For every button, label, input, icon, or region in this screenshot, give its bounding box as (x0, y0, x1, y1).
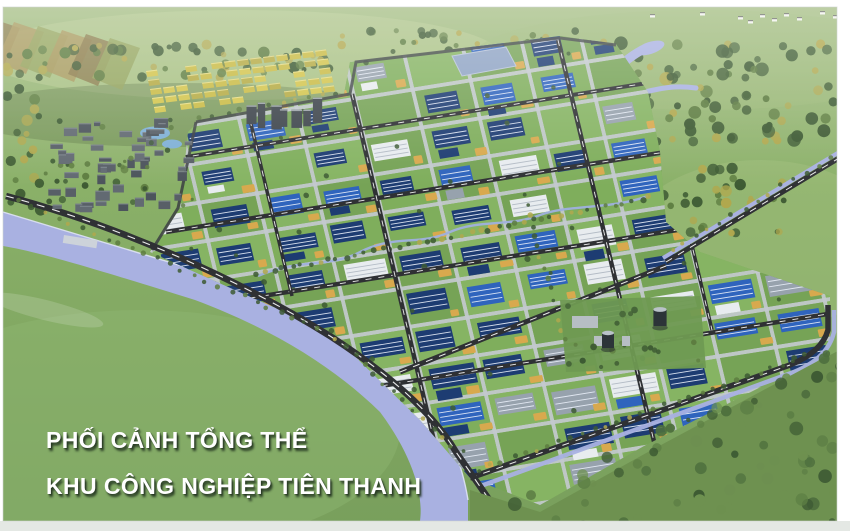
tree (363, 362, 368, 367)
tree (361, 251, 365, 255)
tree (552, 299, 556, 303)
tree (523, 450, 528, 455)
tree (539, 216, 545, 222)
town-block-roofline (65, 188, 76, 189)
tree (645, 193, 651, 199)
tree (417, 240, 422, 245)
tree (585, 208, 589, 212)
tree (701, 391, 705, 395)
tree (528, 212, 534, 218)
tree (329, 328, 334, 333)
tree (559, 213, 565, 219)
tree (759, 441, 768, 450)
caption-line-1: PHỐI CẢNH TỔNG THỂ (46, 429, 421, 452)
tree (686, 227, 696, 237)
tree (425, 239, 430, 244)
tree (731, 451, 738, 458)
tree (523, 193, 527, 197)
tree (522, 220, 527, 225)
tree (698, 225, 705, 232)
tree (46, 199, 52, 205)
tree (253, 272, 258, 277)
town-block-roofline (159, 201, 171, 202)
tree (381, 246, 386, 251)
tree (711, 387, 715, 391)
tree (243, 293, 248, 298)
tree (627, 415, 632, 420)
town-block-roofline (48, 189, 61, 190)
town-block-roofline (146, 192, 156, 193)
tank (653, 310, 666, 327)
tree (478, 227, 484, 233)
tree (156, 255, 160, 259)
tree (566, 361, 572, 367)
tree (619, 311, 626, 318)
tree (567, 435, 572, 440)
tree (667, 203, 674, 210)
tree (817, 435, 828, 446)
office-building (450, 309, 460, 317)
tree (770, 456, 780, 466)
office-building (566, 291, 576, 299)
tree (556, 318, 560, 322)
tree (400, 397, 405, 402)
tree (734, 377, 740, 383)
tree (604, 425, 608, 429)
tree (801, 390, 810, 399)
tree (202, 280, 206, 284)
utility-tanks (560, 296, 706, 372)
tree (691, 340, 697, 346)
tree (818, 469, 832, 483)
tree (131, 246, 135, 250)
tree (577, 469, 588, 480)
tree (716, 505, 726, 515)
tree (542, 267, 546, 271)
tree (263, 306, 268, 311)
tree (695, 462, 707, 474)
tree (728, 212, 733, 217)
tree (593, 426, 598, 431)
town-block-roofline (53, 205, 62, 206)
tree (309, 263, 314, 268)
tree (581, 432, 585, 436)
office-building (325, 289, 336, 298)
tree (781, 198, 787, 204)
tree (273, 268, 279, 274)
tree (578, 210, 583, 215)
town-block (146, 192, 156, 200)
tree (614, 420, 619, 425)
tree (278, 265, 283, 270)
tree (432, 426, 437, 431)
tree (547, 215, 551, 219)
tree (440, 435, 445, 440)
tree (662, 402, 667, 407)
tree (638, 411, 642, 415)
tree (319, 260, 324, 265)
tree (289, 315, 294, 320)
tree (705, 228, 708, 231)
tree (641, 466, 651, 476)
tree (141, 250, 146, 255)
tree (80, 225, 85, 230)
tree (745, 373, 751, 379)
tree (681, 199, 690, 208)
tree (690, 217, 698, 225)
atmospheric-haze (0, 7, 850, 187)
caption-line-2: KHU CÔNG NGHIỆP TIÊN THANH (46, 475, 421, 498)
tree (563, 337, 568, 342)
tree (325, 256, 330, 261)
tree (439, 236, 445, 242)
tree (66, 222, 70, 226)
tree (535, 449, 539, 453)
tree (44, 211, 48, 215)
tree (421, 416, 426, 421)
tree (532, 233, 538, 239)
tree (798, 451, 808, 461)
tree (724, 484, 735, 495)
tree (263, 269, 268, 274)
tree (738, 421, 745, 428)
tree (508, 497, 522, 511)
tree (826, 372, 837, 383)
tank-top (653, 307, 666, 312)
tree (651, 407, 656, 412)
tree (680, 242, 684, 246)
tree (779, 490, 789, 500)
tree (545, 276, 551, 282)
tree (333, 337, 337, 341)
tree (781, 364, 785, 368)
tree (692, 197, 703, 208)
tree (565, 303, 571, 309)
tree (628, 311, 633, 316)
tree (766, 193, 770, 197)
tree (406, 242, 411, 247)
tree (691, 435, 703, 447)
tree (656, 425, 667, 436)
utility-shed (622, 336, 630, 346)
tree (740, 401, 754, 415)
tree (178, 269, 182, 273)
town-block (48, 189, 61, 196)
tree (787, 411, 795, 419)
tree (279, 309, 285, 315)
tree (721, 406, 732, 417)
tree (215, 284, 220, 289)
tree (614, 468, 624, 478)
tree (619, 202, 623, 206)
tree (256, 300, 260, 304)
tree (666, 424, 675, 433)
town-block (118, 204, 128, 212)
tree (448, 444, 452, 448)
town-block-roofline (75, 204, 82, 205)
tree (16, 198, 21, 203)
tree (333, 257, 337, 261)
tree (633, 459, 643, 469)
tree (642, 345, 648, 351)
office-building (751, 300, 762, 309)
tree (696, 359, 700, 363)
town-block-roofline (95, 191, 109, 192)
town-block (95, 191, 109, 201)
tree (762, 473, 774, 485)
tree (512, 220, 517, 225)
tree (686, 395, 691, 400)
tree (650, 474, 656, 480)
tree (570, 211, 574, 215)
tree (230, 290, 235, 295)
tree (649, 448, 658, 457)
tree (677, 399, 681, 403)
town-block-roofline (118, 204, 128, 205)
tree (712, 438, 723, 449)
tree (291, 264, 296, 269)
tree (497, 460, 502, 465)
frame-top (0, 0, 850, 7)
tree (614, 204, 618, 208)
tree (380, 383, 384, 387)
frame-bottom (0, 521, 850, 531)
office-building (181, 193, 191, 201)
tree (57, 217, 62, 222)
tree (513, 453, 518, 458)
tree (470, 229, 475, 234)
tree (718, 222, 722, 226)
town-block-roofline (81, 202, 94, 203)
tree (811, 371, 823, 383)
tree (193, 273, 197, 277)
tree (29, 204, 33, 208)
tree (488, 462, 492, 466)
tank (602, 333, 614, 348)
tree (802, 469, 808, 475)
parking-lot (572, 316, 598, 328)
office-building (601, 443, 612, 452)
tree (430, 238, 436, 244)
tree (181, 203, 185, 207)
framed-masterplan-image: PHỐI CẢNH TỔNG THỂ KHU CÔNG NGHIỆP TIÊN … (0, 0, 850, 531)
tree (744, 207, 749, 212)
tree (411, 409, 415, 413)
tree (344, 255, 350, 261)
tree (477, 469, 481, 473)
tree (92, 232, 96, 236)
tree (531, 225, 536, 230)
tree (353, 254, 357, 258)
town-block-roofline (96, 201, 107, 202)
tree (449, 236, 453, 240)
tree (652, 347, 657, 352)
office-building (314, 250, 324, 258)
tree (545, 444, 550, 449)
tree (721, 384, 727, 390)
tree (315, 326, 320, 331)
tree (791, 359, 795, 363)
tree (485, 228, 491, 234)
tree (756, 200, 760, 204)
tree (59, 196, 66, 203)
town-block (65, 188, 76, 197)
office-building (334, 326, 346, 335)
tree (460, 234, 464, 238)
tree (776, 228, 783, 235)
tree (673, 499, 681, 507)
tree (535, 243, 540, 248)
tree (614, 321, 619, 326)
tree (107, 238, 111, 242)
tree (168, 261, 173, 266)
tree (683, 192, 689, 198)
tree (796, 493, 808, 505)
tree (497, 224, 502, 229)
town-block-roofline (80, 206, 92, 207)
tree (694, 494, 706, 506)
tree (556, 439, 560, 443)
tree (768, 366, 772, 370)
tree (604, 203, 608, 207)
tree (736, 473, 747, 484)
tree (397, 245, 402, 250)
tree (526, 490, 536, 500)
tree (697, 421, 704, 428)
tree (298, 262, 302, 266)
tree (671, 248, 675, 252)
tree (506, 223, 511, 228)
tree (191, 198, 194, 201)
office-building (257, 259, 267, 268)
tree (728, 230, 735, 237)
tree (371, 247, 377, 253)
town-block (174, 194, 181, 201)
tree (590, 344, 597, 351)
town-block-roofline (135, 198, 144, 199)
office-building (650, 393, 661, 401)
tree (354, 352, 359, 357)
tree (580, 358, 586, 364)
town-block (159, 201, 171, 210)
tree (581, 499, 589, 507)
tree (343, 343, 349, 349)
tree (629, 199, 633, 203)
tree (370, 371, 375, 376)
tree (599, 365, 603, 369)
tree (614, 361, 619, 366)
tree (302, 320, 306, 324)
town-block (135, 198, 144, 207)
tree (526, 203, 530, 207)
tree (574, 343, 578, 347)
tree (549, 285, 554, 290)
tree (759, 371, 763, 375)
tree (640, 197, 646, 203)
tree (392, 389, 396, 393)
caption: PHỐI CẢNH TỔNG THỂ KHU CÔNG NGHIỆP TIÊN … (46, 429, 421, 498)
tree (537, 255, 541, 259)
tree (694, 233, 698, 237)
tree (757, 463, 764, 470)
tree (775, 378, 787, 390)
tree (602, 452, 613, 463)
town-block-roofline (174, 194, 181, 195)
frame-right (837, 0, 850, 531)
tank-top (602, 331, 614, 335)
tree (711, 403, 722, 414)
tree (789, 422, 803, 436)
tree (721, 198, 732, 209)
tree (802, 352, 807, 357)
tree (819, 353, 830, 364)
tree (590, 480, 597, 487)
tree (115, 240, 120, 245)
